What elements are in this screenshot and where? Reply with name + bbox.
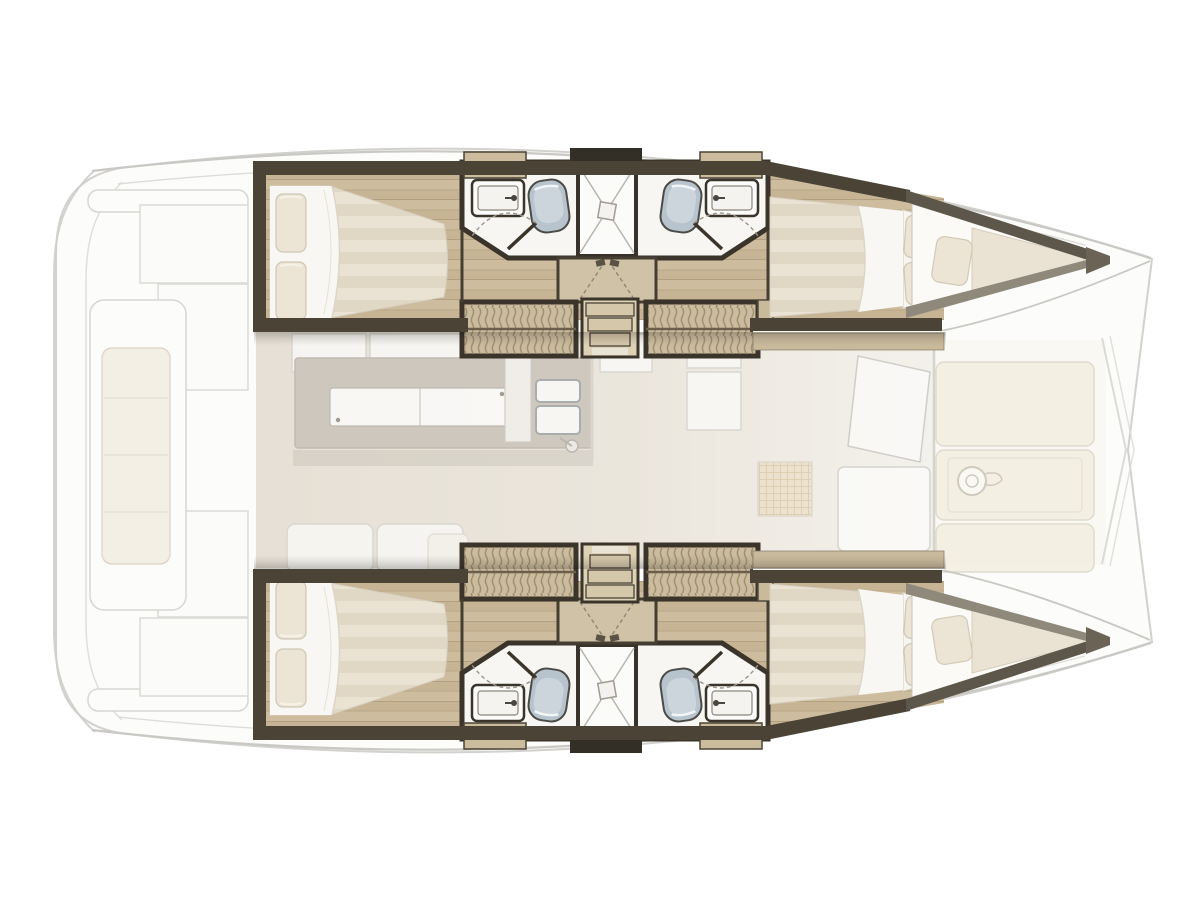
catamaran-floor-plan: [0, 0, 1200, 901]
cockpit-locker: [140, 205, 248, 283]
sink-bowl: [536, 380, 580, 402]
floor-plan-page: [0, 0, 1200, 901]
island-shadow: [293, 450, 593, 466]
sink-bowl: [536, 406, 580, 434]
open-door-leaf: [848, 356, 930, 462]
chart-table: [687, 372, 741, 430]
windlass-winch: [958, 467, 986, 495]
handle: [336, 418, 340, 422]
galley-counter: [505, 358, 531, 442]
sun-pad: [936, 362, 1094, 446]
wicker-stool: [758, 462, 812, 516]
cockpit-locker: [140, 618, 248, 696]
handle: [500, 392, 504, 396]
bench-cushion: [102, 348, 170, 564]
floor-plan-svg: [0, 0, 1200, 901]
saloon-table: [838, 467, 930, 551]
sun-pad: [936, 524, 1094, 572]
